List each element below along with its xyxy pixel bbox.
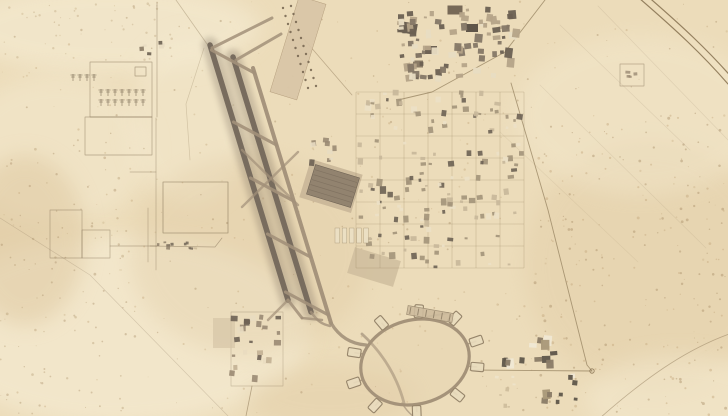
building (381, 252, 384, 255)
building (431, 119, 434, 123)
building (492, 27, 500, 33)
aircraft-dot (297, 55, 299, 57)
building (424, 221, 429, 227)
building (546, 360, 554, 369)
building (158, 41, 162, 45)
building (448, 161, 455, 167)
building (424, 214, 430, 221)
building (466, 9, 469, 12)
building (460, 200, 463, 203)
building (487, 32, 491, 35)
building (386, 98, 389, 101)
building (500, 50, 504, 54)
building (496, 152, 499, 156)
building (434, 244, 440, 248)
building (512, 28, 520, 38)
barracks-building (364, 228, 369, 243)
building (496, 200, 500, 205)
building (462, 63, 468, 67)
building (498, 41, 502, 45)
building (400, 54, 405, 58)
building (491, 194, 497, 200)
building (244, 319, 250, 326)
satellite-viewport (0, 0, 728, 416)
airbase-satellite-image (0, 0, 728, 416)
building (476, 175, 481, 181)
barracks-building (357, 228, 362, 243)
building (259, 315, 264, 320)
building (443, 121, 446, 124)
building (380, 186, 386, 194)
building (421, 188, 425, 192)
building (358, 158, 364, 165)
building (507, 406, 510, 408)
building (454, 43, 461, 51)
building (490, 108, 493, 112)
building (403, 249, 406, 252)
building (488, 130, 492, 134)
building (505, 115, 508, 119)
building (461, 195, 467, 199)
building (277, 331, 280, 335)
building (157, 243, 160, 246)
building (409, 73, 415, 79)
aircraft-dot (287, 23, 289, 25)
building (488, 263, 491, 266)
aircraft-dot (315, 85, 317, 87)
building (449, 29, 457, 35)
building (420, 256, 425, 261)
building (410, 176, 414, 180)
building (422, 50, 425, 54)
building (516, 143, 520, 146)
building (398, 19, 404, 26)
building (513, 124, 516, 128)
aircraft-dot (302, 45, 304, 47)
building (233, 365, 237, 370)
building (359, 189, 363, 193)
building (474, 111, 479, 116)
building (394, 195, 400, 200)
building (375, 139, 379, 143)
building (502, 161, 505, 164)
building (512, 383, 515, 385)
building (184, 243, 187, 246)
building (170, 243, 173, 246)
building (394, 217, 398, 223)
aircraft-dot (297, 29, 299, 31)
building (410, 57, 414, 62)
building (504, 47, 513, 58)
building (429, 163, 432, 165)
building (376, 178, 383, 186)
building (568, 375, 573, 380)
building (425, 259, 429, 263)
building (627, 75, 631, 78)
building (496, 235, 500, 238)
building (275, 316, 281, 320)
aircraft-dot (295, 21, 297, 23)
building (418, 179, 421, 182)
building (231, 316, 238, 322)
building (439, 24, 445, 29)
building (440, 67, 446, 73)
building (534, 357, 542, 362)
building (480, 161, 483, 165)
building (508, 175, 515, 179)
aircraft-dot (292, 39, 294, 41)
building (514, 163, 518, 166)
building (419, 172, 423, 175)
building (370, 99, 375, 102)
building (513, 119, 516, 122)
building (423, 46, 431, 51)
building (529, 343, 537, 348)
building (166, 245, 170, 250)
building (189, 247, 193, 250)
building (572, 380, 578, 386)
building (456, 260, 461, 266)
building (163, 241, 166, 243)
building (257, 350, 263, 355)
building (383, 92, 387, 95)
building (416, 38, 420, 41)
building (473, 68, 481, 74)
building (366, 100, 371, 106)
building (262, 325, 268, 329)
building (428, 75, 433, 80)
building (519, 151, 524, 156)
building (433, 265, 437, 268)
building (416, 53, 422, 57)
building (368, 183, 373, 188)
building (405, 235, 410, 240)
building (424, 237, 430, 244)
building (249, 315, 256, 321)
building (426, 33, 432, 38)
building (389, 252, 396, 259)
building (508, 263, 511, 265)
building (478, 49, 484, 54)
building (412, 44, 418, 49)
building (511, 168, 517, 172)
building (463, 206, 467, 211)
building (258, 360, 262, 363)
aircraft-dot (284, 15, 286, 17)
building (494, 212, 500, 219)
building (398, 26, 404, 30)
building (516, 114, 523, 120)
building (495, 110, 499, 114)
building (452, 105, 457, 108)
building (399, 101, 403, 105)
building (377, 201, 381, 205)
building (424, 208, 429, 212)
building (493, 35, 501, 40)
aircraft-dot (307, 87, 309, 89)
building (477, 195, 483, 200)
building (359, 215, 363, 218)
building (462, 98, 466, 103)
building (469, 198, 475, 203)
building (442, 244, 445, 247)
building (323, 138, 329, 143)
aircraft-dot (302, 71, 304, 73)
building (499, 394, 502, 396)
building (479, 55, 485, 61)
building (403, 142, 406, 145)
building (483, 23, 487, 28)
aircraft-dot (289, 31, 291, 33)
building (513, 211, 516, 214)
building (435, 19, 442, 25)
building (497, 20, 500, 24)
building (479, 20, 483, 25)
building (485, 7, 491, 13)
building (511, 376, 514, 378)
aircraft-dot (310, 69, 312, 71)
building (506, 57, 514, 67)
building (474, 215, 478, 219)
building (506, 25, 510, 29)
building (474, 33, 483, 42)
aircraft-dot (300, 37, 302, 39)
building (371, 115, 375, 119)
building (410, 19, 416, 25)
building (550, 351, 558, 356)
building (369, 254, 374, 259)
building (473, 43, 478, 48)
building (375, 104, 381, 110)
building (463, 106, 469, 112)
building (430, 11, 434, 16)
aircraft-dot (307, 61, 309, 63)
building (541, 340, 549, 350)
building (480, 214, 484, 219)
barracks-building (335, 228, 340, 243)
aircraft-pad (470, 362, 484, 372)
building (274, 340, 281, 346)
building (492, 51, 497, 57)
building (139, 47, 144, 52)
building (486, 213, 492, 220)
building (382, 206, 386, 209)
building (428, 126, 434, 133)
building (403, 215, 409, 222)
building (426, 227, 431, 232)
building (424, 16, 427, 18)
building (519, 357, 525, 363)
aircraft-dot (290, 5, 292, 7)
aircraft-pad (347, 347, 361, 357)
building (410, 29, 417, 37)
building (441, 110, 447, 117)
building (415, 111, 421, 116)
building (511, 143, 516, 147)
building (480, 252, 484, 257)
building (438, 183, 442, 187)
building (479, 91, 483, 96)
building (393, 126, 397, 130)
building (357, 142, 361, 147)
building (478, 113, 481, 115)
building (393, 90, 399, 96)
building (465, 177, 470, 181)
building (478, 151, 483, 156)
building (431, 47, 438, 55)
building (502, 36, 506, 39)
building (243, 350, 247, 355)
building (234, 337, 240, 342)
aircraft-pad (412, 406, 421, 416)
building (232, 354, 235, 356)
building (467, 150, 472, 156)
building (459, 90, 464, 95)
building (491, 73, 496, 78)
building (229, 370, 235, 376)
building (329, 158, 333, 160)
building (332, 145, 336, 151)
aircraft-dot (304, 79, 306, 81)
building (425, 185, 428, 187)
building (310, 142, 316, 147)
building (464, 43, 471, 50)
building (442, 210, 445, 214)
building (433, 153, 436, 156)
building (256, 321, 262, 327)
building (375, 214, 379, 217)
building (435, 75, 442, 82)
building (447, 237, 453, 241)
building (420, 75, 427, 80)
building (378, 234, 382, 238)
building (436, 97, 441, 103)
aircraft-dot (312, 77, 314, 79)
building (505, 387, 509, 391)
building (574, 398, 578, 401)
building (420, 219, 424, 222)
building (434, 251, 439, 255)
building (402, 31, 405, 33)
building (503, 404, 507, 408)
building (625, 71, 630, 74)
building (556, 400, 560, 404)
building (503, 188, 509, 195)
building (327, 150, 333, 155)
building (249, 341, 253, 343)
building (237, 326, 244, 333)
building (506, 126, 509, 129)
aircraft-dot (305, 53, 307, 55)
building (420, 157, 425, 160)
building (447, 193, 450, 195)
building (441, 198, 447, 205)
aircraft-dot (294, 47, 296, 49)
building (460, 94, 463, 98)
building (405, 187, 409, 192)
building (371, 188, 375, 191)
building (379, 156, 382, 160)
building (252, 375, 258, 382)
barracks-building (342, 228, 347, 243)
building (410, 236, 416, 241)
building (399, 208, 403, 211)
building (147, 52, 151, 55)
building (559, 393, 563, 397)
building (508, 10, 516, 19)
building (266, 357, 272, 363)
building (309, 159, 315, 166)
building (456, 74, 463, 79)
building (461, 23, 467, 31)
aircraft-dot (299, 63, 301, 65)
building (412, 152, 417, 155)
building (387, 192, 392, 198)
barracks-building (349, 228, 354, 243)
building (505, 359, 510, 365)
building (257, 355, 262, 361)
aircraft-dot (292, 13, 294, 15)
building (495, 376, 499, 379)
building (143, 44, 147, 47)
building (461, 15, 469, 21)
building (547, 392, 552, 397)
building (407, 11, 414, 16)
building (465, 237, 468, 239)
building (401, 43, 404, 46)
building (411, 253, 417, 260)
building (448, 52, 456, 58)
building (420, 62, 424, 66)
building (420, 225, 423, 228)
building (633, 72, 637, 75)
aircraft-dot (282, 7, 284, 9)
building (450, 176, 453, 179)
building (486, 14, 493, 22)
building (447, 202, 453, 207)
building (397, 205, 401, 208)
building (420, 162, 426, 166)
